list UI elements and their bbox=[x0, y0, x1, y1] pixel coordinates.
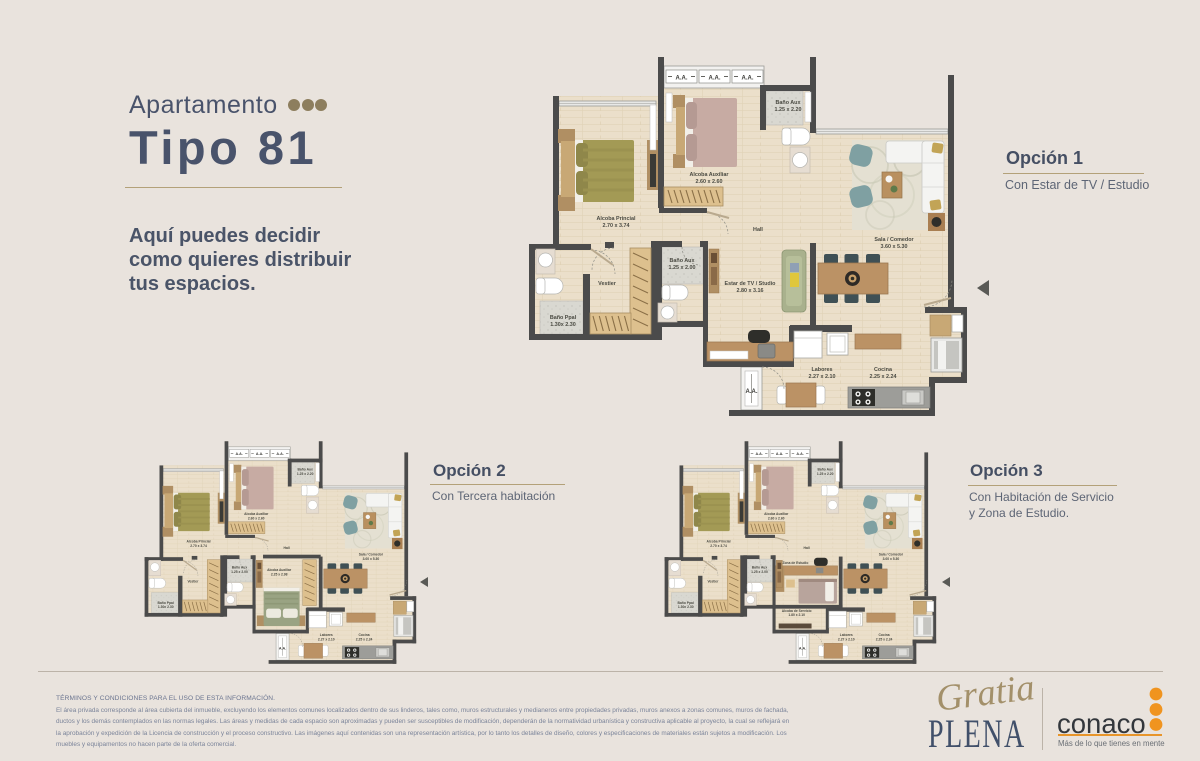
svg-text:Alcoba Princial: Alcoba Princial bbox=[186, 539, 210, 543]
svg-text:1.25 x 2.20: 1.25 x 2.20 bbox=[817, 472, 834, 476]
svg-text:Labores: Labores bbox=[812, 367, 833, 373]
svg-text:Baño Aux: Baño Aux bbox=[670, 258, 695, 264]
svg-text:A.A.: A.A. bbox=[709, 75, 721, 81]
svg-text:Hall: Hall bbox=[753, 227, 763, 233]
svg-text:3.60 x 5.30: 3.60 x 5.30 bbox=[883, 557, 900, 561]
svg-text:3.60 x 5.30: 3.60 x 5.30 bbox=[362, 556, 379, 560]
svg-text:A.A.: A.A. bbox=[746, 389, 758, 395]
svg-text:A.A.: A.A. bbox=[776, 452, 783, 456]
svg-text:A.A.: A.A. bbox=[676, 75, 688, 81]
svg-text:A.A.: A.A. bbox=[256, 452, 263, 456]
svg-text:Sala / Comedor: Sala / Comedor bbox=[879, 552, 904, 556]
svg-text:Baño Aux: Baño Aux bbox=[752, 565, 768, 569]
svg-text:Baño Ppal: Baño Ppal bbox=[678, 601, 694, 605]
svg-text:Alcoba Auxiliar: Alcoba Auxiliar bbox=[764, 512, 789, 516]
svg-text:2.70 x 3.74: 2.70 x 3.74 bbox=[190, 543, 207, 547]
svg-text:Labores: Labores bbox=[840, 633, 853, 637]
svg-text:2.60 x 2.60: 2.60 x 2.60 bbox=[248, 516, 265, 520]
svg-text:2.27 x 2.10: 2.27 x 2.10 bbox=[838, 637, 855, 641]
svg-text:Baño Ppal: Baño Ppal bbox=[550, 315, 577, 321]
svg-text:2.70 x 3.74: 2.70 x 3.74 bbox=[603, 223, 630, 229]
svg-text:A.A.: A.A. bbox=[756, 452, 763, 456]
svg-text:Vestier: Vestier bbox=[708, 580, 720, 584]
svg-text:2.60 x 2.60: 2.60 x 2.60 bbox=[696, 179, 723, 185]
svg-text:Baño Aux: Baño Aux bbox=[818, 468, 834, 472]
svg-text:Alcoba Auxiliar: Alcoba Auxiliar bbox=[267, 568, 292, 572]
svg-text:A.A.: A.A. bbox=[279, 646, 286, 650]
svg-text:Baño Aux: Baño Aux bbox=[297, 467, 313, 471]
svg-text:2.80 x 3.16: 2.80 x 3.16 bbox=[737, 288, 764, 294]
svg-text:2.25 x 2.24: 2.25 x 2.24 bbox=[356, 637, 373, 641]
svg-text:Vestier: Vestier bbox=[187, 579, 199, 583]
svg-text:1.25 x 2.20: 1.25 x 2.20 bbox=[775, 107, 802, 113]
svg-text:1.30x 2.30: 1.30x 2.30 bbox=[158, 605, 174, 609]
svg-text:Cocina: Cocina bbox=[358, 633, 369, 637]
svg-text:Hall: Hall bbox=[283, 546, 289, 550]
svg-text:1.25 x 2.20: 1.25 x 2.20 bbox=[297, 471, 314, 475]
svg-text:2.27 x 2.10: 2.27 x 2.10 bbox=[318, 637, 335, 641]
svg-text:Vestier: Vestier bbox=[598, 281, 617, 287]
svg-text:1.25 x 2.00: 1.25 x 2.00 bbox=[669, 265, 696, 271]
svg-text:Alcoba de Servicio: Alcoba de Servicio bbox=[782, 609, 812, 613]
svg-text:A.A.: A.A. bbox=[276, 452, 283, 456]
svg-text:Cocina: Cocina bbox=[874, 367, 893, 373]
svg-text:Hall: Hall bbox=[804, 546, 810, 550]
svg-text:2.27 x 2.10: 2.27 x 2.10 bbox=[809, 374, 836, 380]
svg-text:Sala / Comedor: Sala / Comedor bbox=[359, 552, 384, 556]
svg-text:3.60 x 5.30: 3.60 x 5.30 bbox=[881, 244, 908, 250]
svg-text:A.A.: A.A. bbox=[797, 452, 804, 456]
svg-text:1.30x 2.30: 1.30x 2.30 bbox=[678, 605, 694, 609]
svg-text:1.25 x 2.00: 1.25 x 2.00 bbox=[231, 569, 248, 573]
svg-text:1.80 x 2.10: 1.80 x 2.10 bbox=[789, 613, 806, 617]
svg-text:Labores: Labores bbox=[320, 633, 333, 637]
svg-text:Sala / Comedor: Sala / Comedor bbox=[874, 237, 914, 243]
svg-text:1.30x 2.30: 1.30x 2.30 bbox=[550, 322, 575, 328]
svg-text:2.25 x 2.24: 2.25 x 2.24 bbox=[870, 374, 897, 380]
svg-text:Alcoba Princial: Alcoba Princial bbox=[597, 216, 636, 222]
svg-text:2.25 x 2.98: 2.25 x 2.98 bbox=[271, 572, 288, 576]
svg-text:Alcoba Auxiliar: Alcoba Auxiliar bbox=[244, 512, 269, 516]
svg-text:A.A.: A.A. bbox=[742, 75, 754, 81]
svg-text:2.70 x 3.74: 2.70 x 3.74 bbox=[711, 544, 728, 548]
svg-text:Alcoba Princial: Alcoba Princial bbox=[707, 539, 731, 543]
svg-text:Baño Ppal: Baño Ppal bbox=[157, 600, 173, 604]
svg-text:Alcoba Auxiliar: Alcoba Auxiliar bbox=[689, 172, 729, 178]
svg-text:Estar de TV / Studio: Estar de TV / Studio bbox=[725, 281, 777, 287]
svg-text:1.25 x 2.00: 1.25 x 2.00 bbox=[751, 570, 768, 574]
svg-text:A.A.: A.A. bbox=[799, 647, 806, 651]
svg-text:Baño Aux: Baño Aux bbox=[232, 565, 248, 569]
svg-text:Baño Aux: Baño Aux bbox=[776, 100, 801, 106]
svg-text:2.60 x 2.60: 2.60 x 2.60 bbox=[768, 516, 785, 520]
svg-text:A.A.: A.A. bbox=[235, 452, 242, 456]
svg-text:Zona de Estudio: Zona de Estudio bbox=[783, 561, 809, 565]
svg-text:Cocina: Cocina bbox=[879, 633, 890, 637]
svg-text:2.25 x 2.24: 2.25 x 2.24 bbox=[876, 637, 893, 641]
